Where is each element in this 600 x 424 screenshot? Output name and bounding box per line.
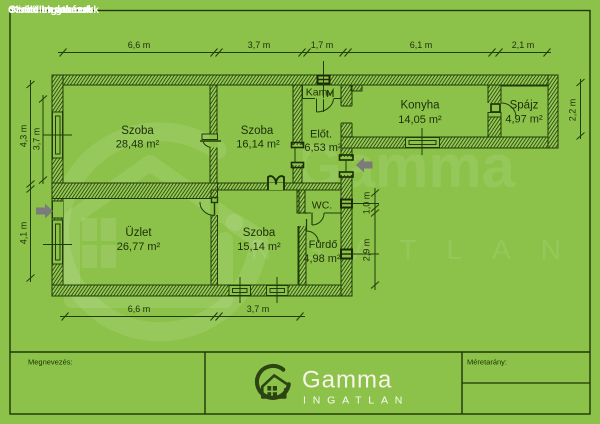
svg-text:Megnevezés:: Megnevezés: [28, 358, 73, 367]
svg-text:WC.: WC. [312, 200, 332, 212]
svg-text:Üzlet: Üzlet [125, 227, 152, 239]
svg-text:3,7 m: 3,7 m [247, 304, 270, 314]
svg-text:2,1 m: 2,1 m [512, 40, 535, 50]
svg-text:14,05 m²: 14,05 m² [398, 114, 442, 126]
svg-text:26,77 m²: 26,77 m² [117, 241, 161, 253]
svg-text:4,3 m: 4,3 m [19, 125, 29, 148]
svg-text:4,98 m²: 4,98 m² [303, 253, 341, 265]
svg-text:Kam.: Kam. [306, 87, 331, 99]
svg-text:1,0 m: 1,0 m [362, 192, 372, 215]
svg-text:2,9 m: 2,9 m [362, 239, 372, 262]
svg-text:3,7 m: 3,7 m [32, 128, 42, 151]
svg-text:Gamma: Gamma [302, 367, 392, 394]
svg-text:telek garázsok: telek garázsok [30, 5, 99, 16]
svg-text:4,97 m²: 4,97 m² [505, 114, 543, 126]
svg-text:Méretarány:: Méretarány: [467, 358, 507, 367]
svg-text:Előt.: Előt. [310, 129, 332, 141]
svg-text:3,7 m: 3,7 m [248, 40, 271, 50]
svg-text:2,2 m: 2,2 m [568, 99, 578, 122]
svg-text:6,6 m: 6,6 m [128, 40, 151, 50]
svg-text:4,1 m: 4,1 m [19, 222, 29, 245]
svg-text:15,14 m²: 15,14 m² [237, 241, 281, 253]
svg-text:1,7 m: 1,7 m [311, 40, 334, 50]
svg-text:Fürdő: Fürdő [309, 239, 338, 251]
svg-text:Konyha: Konyha [400, 100, 440, 112]
svg-text:Szoba: Szoba [241, 125, 274, 137]
svg-text:28,48 m²: 28,48 m² [116, 139, 160, 151]
svg-text:INGATLAN: INGATLAN [303, 395, 409, 407]
svg-text:6,6 m: 6,6 m [128, 304, 151, 314]
svg-text:16,14 m²: 16,14 m² [236, 139, 280, 151]
svg-text:Szoba: Szoba [243, 227, 276, 239]
svg-text:6,1 m: 6,1 m [410, 40, 433, 50]
svg-text:Szoba: Szoba [121, 125, 154, 137]
svg-text:6,53 m²: 6,53 m² [304, 142, 342, 154]
